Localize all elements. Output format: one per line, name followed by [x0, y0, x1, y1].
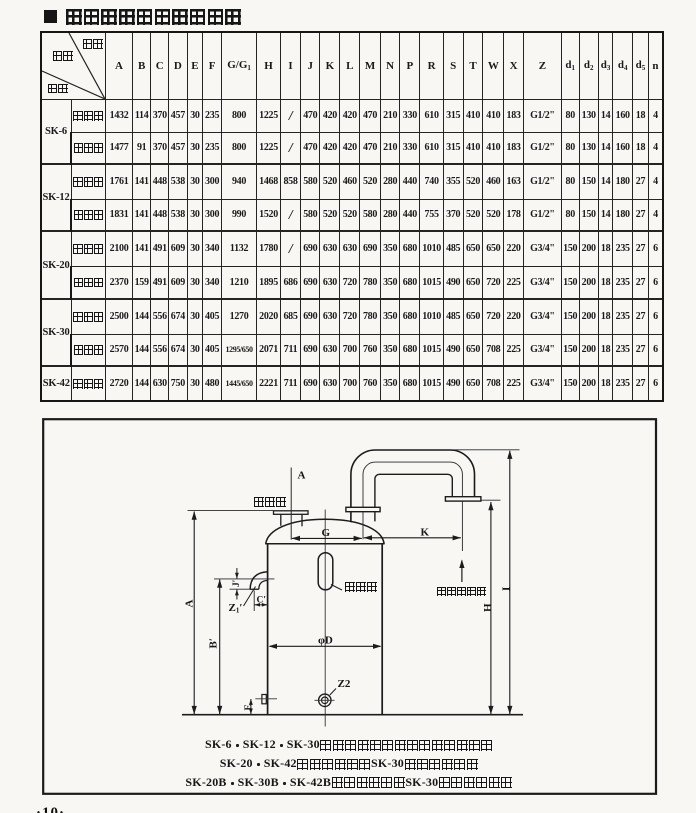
svg-text:E: E — [244, 704, 254, 710]
svg-text:Z2: Z2 — [338, 678, 351, 690]
svg-text:A: A — [184, 600, 196, 608]
svg-text:K: K — [421, 527, 430, 539]
svg-text:B′: B′ — [208, 638, 220, 648]
svg-text:J′: J′ — [232, 579, 242, 587]
svg-text:I: I — [501, 587, 513, 591]
svg-text:H: H — [482, 603, 494, 612]
svg-text:A: A — [298, 470, 306, 482]
svg-text:G: G — [322, 527, 331, 539]
svg-text:Z1′: Z1′ — [229, 602, 243, 615]
svg-text:φD: φD — [318, 635, 333, 647]
